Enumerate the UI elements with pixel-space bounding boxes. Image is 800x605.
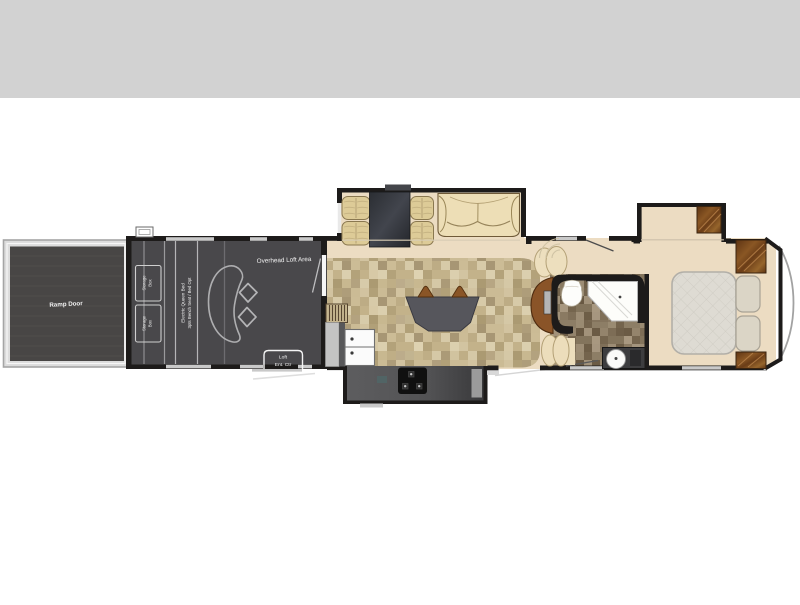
svg-text:Storage: Storage bbox=[142, 275, 147, 291]
svg-text:Electric Queen Bed: Electric Queen Bed bbox=[181, 283, 186, 323]
svg-text:Ent. Ctr: Ent. Ctr bbox=[275, 362, 292, 368]
svg-text:Storage: Storage bbox=[142, 315, 147, 331]
svg-text:Box: Box bbox=[148, 278, 153, 286]
svg-text:Box: Box bbox=[148, 319, 153, 327]
svg-text:3pts Bench Seat / Bed Opt: 3pts Bench Seat / Bed Opt bbox=[187, 277, 192, 329]
svg-text:Loft: Loft bbox=[279, 355, 288, 361]
